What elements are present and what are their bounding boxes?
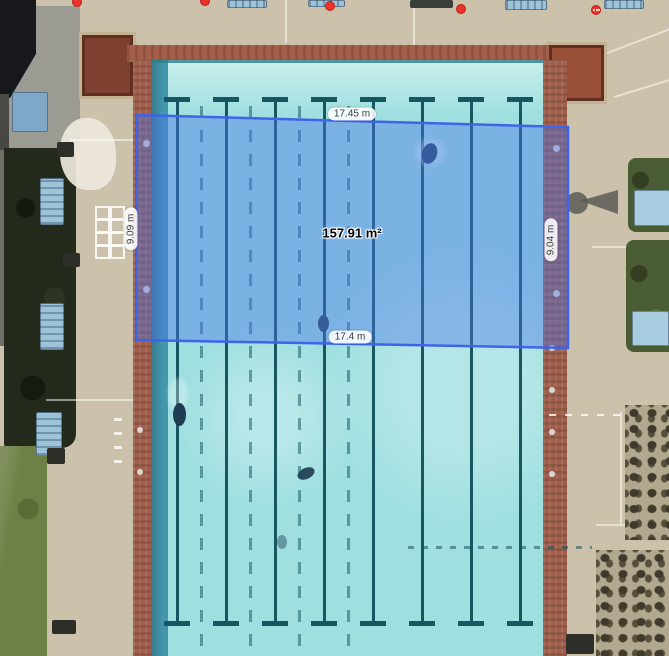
deck-anchor-dot: [137, 427, 143, 433]
deck-dots-layer: [0, 0, 669, 656]
distance-label-top: 17.45 m: [328, 108, 376, 121]
distance-label-right: 9.04 m: [545, 219, 558, 262]
deck-dash-mark: [114, 446, 122, 449]
pool-wall-light-dot: [143, 286, 150, 293]
deck-dash-mark: [114, 432, 122, 435]
deck-anchor-dot: [549, 471, 555, 477]
deck-anchor-dot: [549, 387, 555, 393]
map-canvas[interactable]: 17.45 m 17.4 m 9.09 m 9.04 m 157.91 m²: [0, 0, 669, 656]
pool-wall-light-dot: [143, 140, 150, 147]
pool-wall-light-dot: [553, 290, 560, 297]
distance-label-left: 9.09 m: [125, 208, 138, 251]
deck-anchor-dot: [549, 429, 555, 435]
pool-wall-light-dot: [553, 145, 560, 152]
deck-dash-mark: [114, 418, 122, 421]
deck-anchor-dot: [549, 345, 555, 351]
deck-dash-mark: [114, 460, 122, 463]
deck-anchor-dot: [137, 469, 143, 475]
distance-label-bottom: 17.4 m: [329, 331, 372, 344]
area-label: 157.91 m²: [322, 226, 381, 241]
